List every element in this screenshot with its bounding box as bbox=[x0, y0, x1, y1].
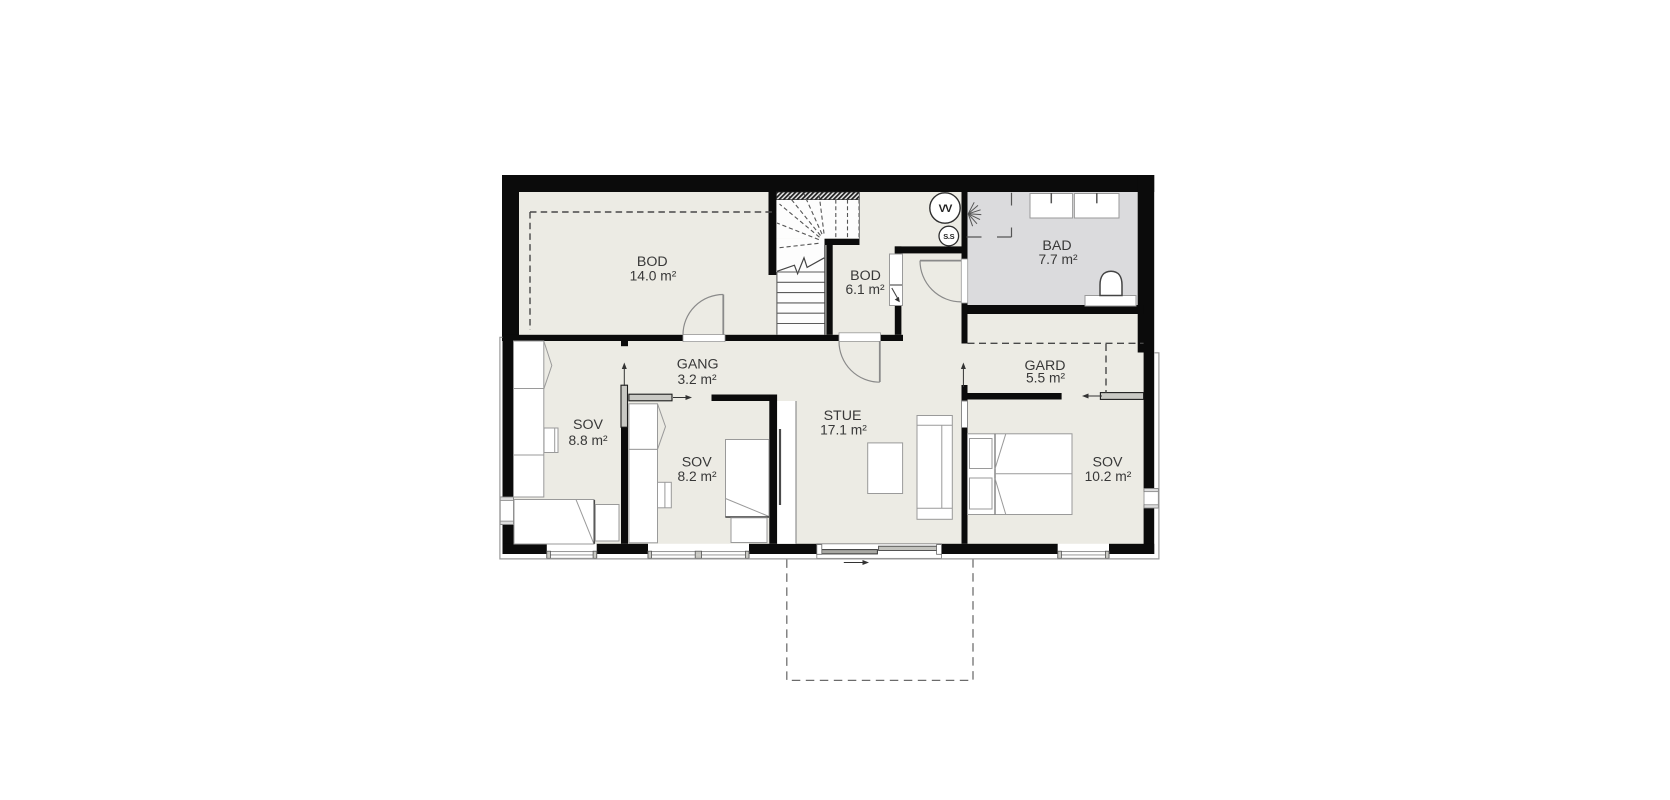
svg-text:7.7 m²: 7.7 m² bbox=[1038, 252, 1078, 267]
svg-text:GANG: GANG bbox=[677, 357, 719, 373]
svg-text:SOV: SOV bbox=[573, 417, 603, 433]
svg-text:8.2 m²: 8.2 m² bbox=[677, 469, 717, 484]
svg-text:S.S: S.S bbox=[943, 232, 954, 241]
svg-text:8.8 m²: 8.8 m² bbox=[568, 433, 608, 448]
svg-text:14.0 m²: 14.0 m² bbox=[630, 269, 677, 284]
svg-text:VV: VV bbox=[939, 203, 953, 215]
svg-text:6.1 m²: 6.1 m² bbox=[845, 282, 885, 297]
svg-text:5.5 m²: 5.5 m² bbox=[1026, 371, 1066, 386]
svg-text:17.1 m²: 17.1 m² bbox=[820, 422, 867, 437]
svg-text:3.2 m²: 3.2 m² bbox=[677, 372, 717, 387]
svg-text:10.2 m²: 10.2 m² bbox=[1085, 469, 1132, 484]
